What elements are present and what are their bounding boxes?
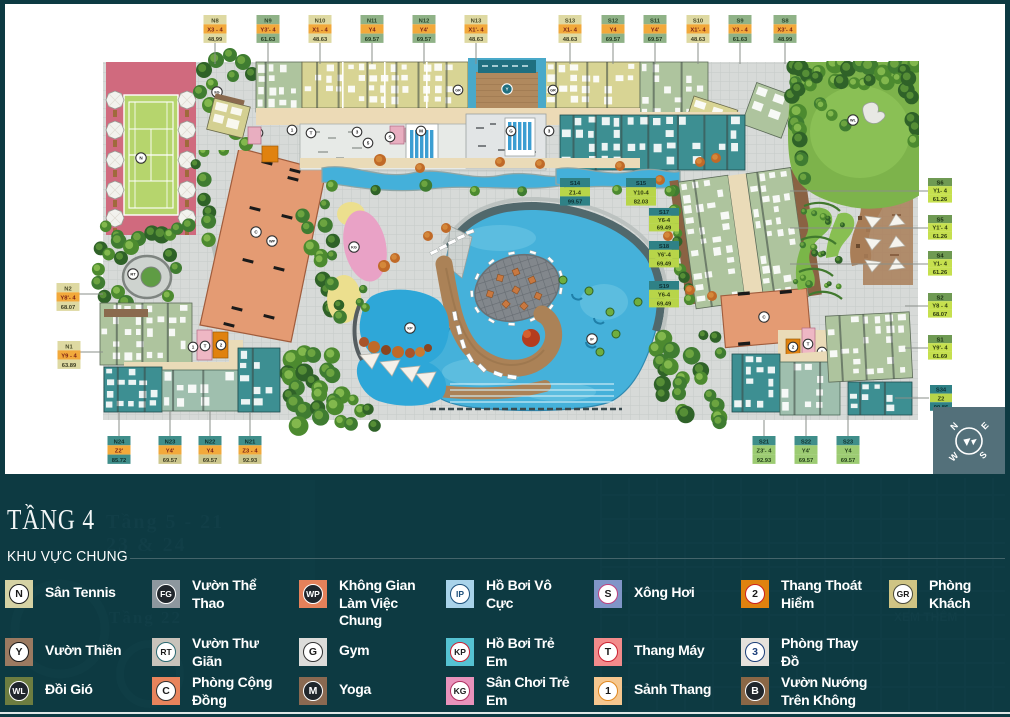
svg-text:T: T: [204, 344, 207, 349]
svg-text:X3 - 4: X3 - 4: [207, 28, 223, 34]
svg-text:N10: N10: [315, 18, 326, 24]
svg-text:S15: S15: [636, 181, 647, 187]
svg-text:S: S: [388, 135, 391, 140]
svg-text:Y4: Y4: [206, 449, 214, 455]
svg-text:69.49: 69.49: [657, 302, 672, 308]
svg-text:Y1- 4: Y1- 4: [933, 189, 948, 195]
svg-text:N2: N2: [64, 286, 71, 292]
svg-text:X1- 4: X1- 4: [563, 28, 578, 34]
svg-text:N1: N1: [65, 344, 73, 350]
svg-text:N11: N11: [367, 18, 378, 24]
svg-text:61.63: 61.63: [261, 37, 276, 43]
svg-text:G: G: [509, 129, 513, 134]
svg-text:S9: S9: [736, 18, 744, 24]
svg-text:Y4': Y4': [166, 449, 175, 455]
svg-text:68.07: 68.07: [61, 305, 76, 311]
svg-text:Z3'- 4: Z3'- 4: [757, 449, 773, 455]
svg-text:N12: N12: [419, 18, 430, 24]
svg-text:Z1-4: Z1-4: [569, 190, 582, 196]
svg-text:48.63: 48.63: [469, 37, 484, 43]
svg-text:3: 3: [548, 129, 551, 134]
svg-text:N24: N24: [114, 439, 125, 445]
svg-text:IP: IP: [590, 337, 594, 341]
svg-text:92.93: 92.93: [243, 458, 258, 464]
svg-text:Y4': Y4': [802, 449, 811, 455]
svg-text:3: 3: [356, 130, 359, 135]
svg-text:48,99: 48,99: [208, 37, 223, 43]
svg-text:N8: N8: [211, 18, 219, 24]
svg-text:Y8 - 4: Y8 - 4: [932, 304, 948, 310]
svg-text:61.26: 61.26: [933, 234, 948, 240]
svg-text:Y1- 4: Y1- 4: [933, 262, 948, 268]
svg-text:Y9'- 4: Y9'- 4: [932, 346, 948, 352]
svg-text:85.72: 85.72: [112, 458, 127, 464]
svg-text:92.93: 92.93: [757, 458, 772, 464]
svg-text:48.63: 48.63: [691, 37, 706, 43]
svg-text:N9: N9: [264, 18, 272, 24]
svg-text:Y4: Y4: [844, 449, 852, 455]
svg-text:Z3 - 4: Z3 - 4: [242, 449, 258, 455]
svg-text:GR: GR: [455, 88, 461, 92]
svg-text:48.63: 48.63: [313, 37, 328, 43]
svg-text:69.57: 69.57: [417, 37, 432, 43]
svg-text:KG: KG: [351, 245, 357, 249]
svg-text:1: 1: [291, 128, 294, 133]
svg-text:61.26: 61.26: [933, 197, 948, 203]
svg-text:X3'- 4: X3'- 4: [777, 28, 793, 34]
svg-text:S34: S34: [936, 388, 947, 394]
svg-text:S4: S4: [936, 253, 944, 259]
svg-text:69.57: 69.57: [203, 458, 218, 464]
svg-text:82.03: 82.03: [634, 200, 649, 206]
svg-text:48.63: 48.63: [563, 37, 578, 43]
svg-text:M: M: [419, 129, 423, 134]
svg-text:N22: N22: [205, 439, 216, 445]
svg-text:2: 2: [792, 345, 795, 350]
svg-text:RT: RT: [130, 271, 136, 276]
svg-text:S5: S5: [936, 217, 944, 223]
svg-text:WP: WP: [269, 239, 276, 243]
svg-text:69.57: 69.57: [841, 458, 856, 464]
svg-text:T: T: [310, 131, 313, 136]
svg-text:Y4': Y4': [651, 28, 660, 34]
svg-text:Y8'- 4: Y8'- 4: [60, 296, 76, 302]
svg-text:Y9 - 4: Y9 - 4: [61, 354, 77, 360]
svg-text:69.49: 69.49: [657, 262, 672, 268]
svg-text:Y6-4: Y6-4: [658, 218, 671, 224]
svg-text:99.57: 99.57: [568, 200, 583, 206]
svg-text:48.99: 48.99: [778, 37, 793, 43]
svg-text:1: 1: [192, 345, 195, 350]
svg-text:S2: S2: [936, 295, 943, 301]
svg-text:69.57: 69.57: [365, 37, 380, 43]
svg-text:S21: S21: [759, 439, 770, 445]
svg-text:69.49: 69.49: [657, 226, 672, 232]
svg-text:S18: S18: [659, 244, 670, 250]
svg-text:Z2': Z2': [115, 449, 124, 455]
svg-text:69.57: 69.57: [799, 458, 814, 464]
svg-text:N13: N13: [471, 18, 482, 24]
svg-text:Y10-4: Y10-4: [633, 190, 649, 196]
svg-text:KP: KP: [407, 326, 413, 330]
svg-text:S10: S10: [693, 18, 703, 24]
svg-text:T: T: [807, 342, 810, 347]
svg-text:N21: N21: [245, 439, 256, 445]
svg-text:S1: S1: [936, 337, 944, 343]
svg-text:Y1'- 4: Y1'- 4: [932, 226, 948, 232]
svg-text:S19: S19: [659, 284, 670, 290]
svg-text:X1 - 4: X1 - 4: [312, 28, 328, 34]
svg-text:Y3'- 4: Y3'- 4: [260, 28, 276, 34]
svg-text:Y3 - 4: Y3 - 4: [732, 28, 748, 34]
svg-text:X1'- 4: X1'- 4: [690, 28, 706, 34]
svg-text:61.26: 61.26: [933, 270, 948, 276]
svg-text:Y6-4: Y6-4: [658, 293, 671, 299]
svg-text:69.57: 69.57: [163, 458, 178, 464]
svg-text:Y4: Y4: [609, 28, 617, 34]
svg-text:Z2: Z2: [938, 396, 945, 402]
svg-text:61.63: 61.63: [733, 37, 748, 43]
svg-text:63.89: 63.89: [62, 363, 77, 369]
svg-text:5: 5: [367, 141, 370, 146]
svg-text:69.57: 69.57: [648, 37, 663, 43]
svg-text:Y4: Y4: [368, 28, 376, 34]
svg-text:S6: S6: [936, 180, 944, 186]
svg-text:Y6'-4: Y6'-4: [657, 253, 671, 259]
svg-text:S8: S8: [781, 18, 789, 24]
svg-text:S14: S14: [570, 181, 581, 187]
svg-text:2: 2: [220, 343, 223, 348]
svg-text:S13: S13: [565, 18, 576, 24]
svg-text:Y: Y: [505, 87, 508, 92]
svg-text:61.69: 61.69: [933, 354, 948, 360]
svg-text:S22: S22: [801, 439, 811, 445]
svg-text:S17: S17: [659, 210, 669, 216]
svg-text:S11: S11: [650, 18, 661, 24]
svg-text:GR: GR: [550, 88, 556, 92]
svg-text:S23: S23: [843, 439, 854, 445]
svg-text:Y4': Y4': [420, 28, 429, 34]
svg-text:WL: WL: [850, 118, 857, 122]
svg-text:69.57: 69.57: [606, 37, 621, 43]
svg-text:N23: N23: [165, 439, 176, 445]
svg-text:X1'- 4: X1'- 4: [468, 28, 484, 34]
svg-text:S12: S12: [608, 18, 618, 24]
svg-text:68.07: 68.07: [933, 312, 948, 318]
